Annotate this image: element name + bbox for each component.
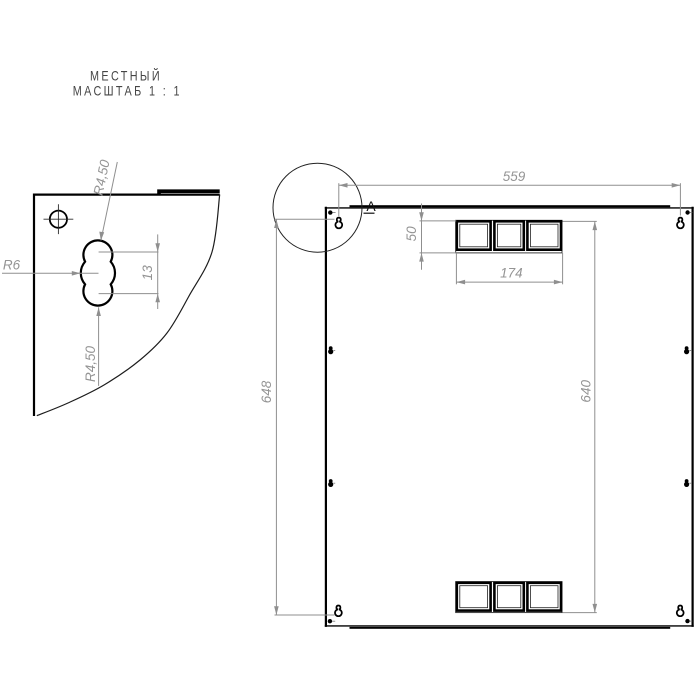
svg-text:МАСШТАБ 1 : 1: МАСШТАБ 1 : 1 (73, 83, 182, 99)
svg-text:R4,50: R4,50 (83, 345, 98, 382)
svg-text:МЕСТНЫЙ: МЕСТНЫЙ (90, 67, 162, 84)
svg-text:640: 640 (578, 380, 593, 403)
svg-text:50: 50 (404, 226, 419, 242)
svg-text:174: 174 (500, 266, 523, 281)
svg-text:648: 648 (259, 380, 274, 403)
svg-text:R6: R6 (3, 258, 21, 273)
svg-text:R4,50: R4,50 (91, 158, 113, 197)
svg-text:13: 13 (140, 265, 155, 281)
svg-text:А: А (366, 198, 376, 214)
svg-text:559: 559 (503, 169, 526, 184)
